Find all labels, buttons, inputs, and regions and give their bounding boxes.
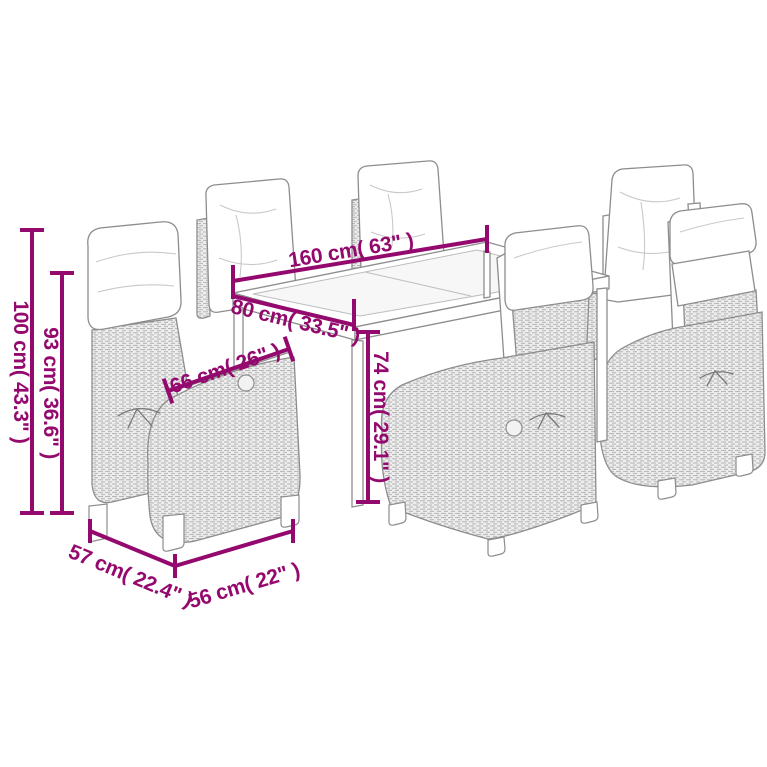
chair-front-middle-cushion xyxy=(505,226,593,311)
dimension-table-height-label: 74 cm( 29.1" ) xyxy=(369,351,392,483)
table-leg-front-right xyxy=(597,288,607,442)
chair-front-middle-foot xyxy=(389,502,406,525)
dimension-chair-height-label: 100 cm( 43.3" ) xyxy=(9,300,32,443)
chair-front-middle-foot xyxy=(581,502,598,523)
chair-front-right-foot xyxy=(658,478,676,499)
table-leg-front-left xyxy=(352,340,363,507)
chair-front-middle-arm xyxy=(381,342,596,539)
table-leg-back-right xyxy=(484,251,490,298)
chair-front-right-foot xyxy=(736,454,753,476)
dimension-chair-height: 100 cm( 43.3" ) xyxy=(9,230,44,513)
chair-front-middle-foot xyxy=(488,537,505,556)
dimension-chair-backrest-height-label: 93 cm( 36.6" ) xyxy=(39,327,62,459)
diagram-canvas: 100 cm( 43.3" ) 93 cm( 36.6" ) 160 cm( 6… xyxy=(0,0,767,767)
chair-front-left-foot xyxy=(163,514,184,551)
chair-front-left-recline-knob xyxy=(238,375,254,391)
dimension-chair-depth-label: 56 cm( 22" ) xyxy=(186,558,303,613)
chair-front-middle-recline-knob xyxy=(506,420,522,436)
product-dimension-diagram: 100 cm( 43.3" ) 93 cm( 36.6" ) 160 cm( 6… xyxy=(0,0,767,767)
dimension-chair-backrest-height: 93 cm( 36.6" ) xyxy=(39,273,74,513)
chair-front-left-cushion xyxy=(88,222,181,330)
chair-front-left-foot xyxy=(281,495,299,527)
